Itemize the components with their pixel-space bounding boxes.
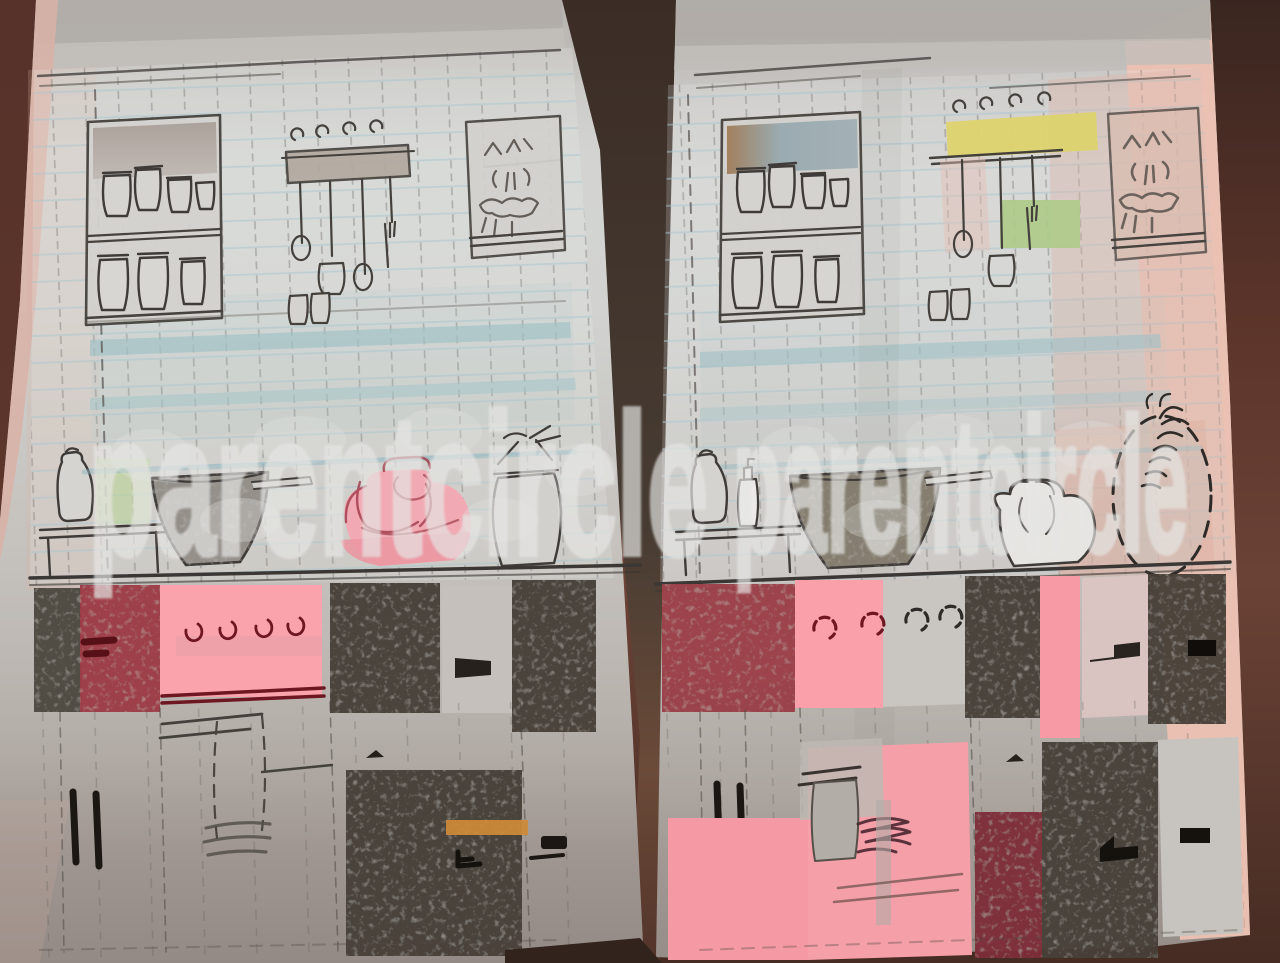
- svg-text:parentcircle: parentcircle: [733, 380, 1188, 592]
- svg-text:parentcircle: parentcircle: [88, 374, 708, 597]
